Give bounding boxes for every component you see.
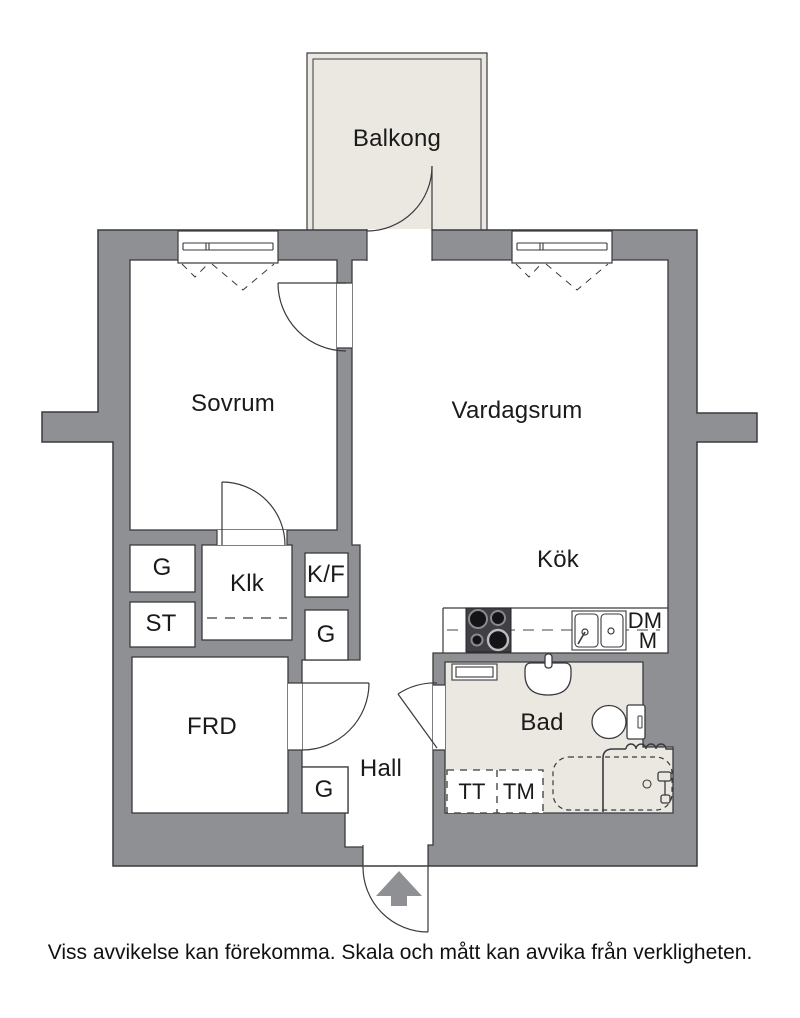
label-cleaning-closet: ST — [145, 610, 176, 638]
room-label-balcony: Balkong — [353, 125, 441, 153]
bathroom-radiator — [452, 664, 497, 680]
room-label-storage: FRD — [187, 713, 237, 741]
entrance-arrow-icon — [376, 871, 422, 906]
kitchen-sink — [572, 611, 626, 650]
room-label-bedroom: Sovrum — [191, 390, 275, 418]
label-tumble-dryer: TT — [458, 779, 485, 805]
stove — [466, 608, 511, 652]
label-wardrobe-3: G — [315, 776, 334, 804]
label-walk-in-closet: Klk — [230, 570, 264, 598]
label-wardrobe-1: G — [153, 554, 172, 582]
label-wardrobe-2: G — [317, 621, 336, 649]
toilet — [592, 705, 645, 739]
room-label-bathroom: Bad — [520, 709, 563, 737]
room-label-hall: Hall — [360, 755, 402, 783]
floor-plan-page: Balkong Sovrum Vardagsrum Kök G Klk K/F … — [0, 0, 800, 1018]
label-micro: M — [639, 628, 658, 654]
label-washing-machine: TM — [503, 779, 535, 805]
room-label-living: Vardagsrum — [452, 397, 583, 425]
label-fridge-freezer: K/F — [307, 561, 345, 589]
disclaimer-text: Viss avvikelse kan förekomma. Skala och … — [0, 941, 800, 965]
room-label-kitchen: Kök — [537, 546, 579, 574]
